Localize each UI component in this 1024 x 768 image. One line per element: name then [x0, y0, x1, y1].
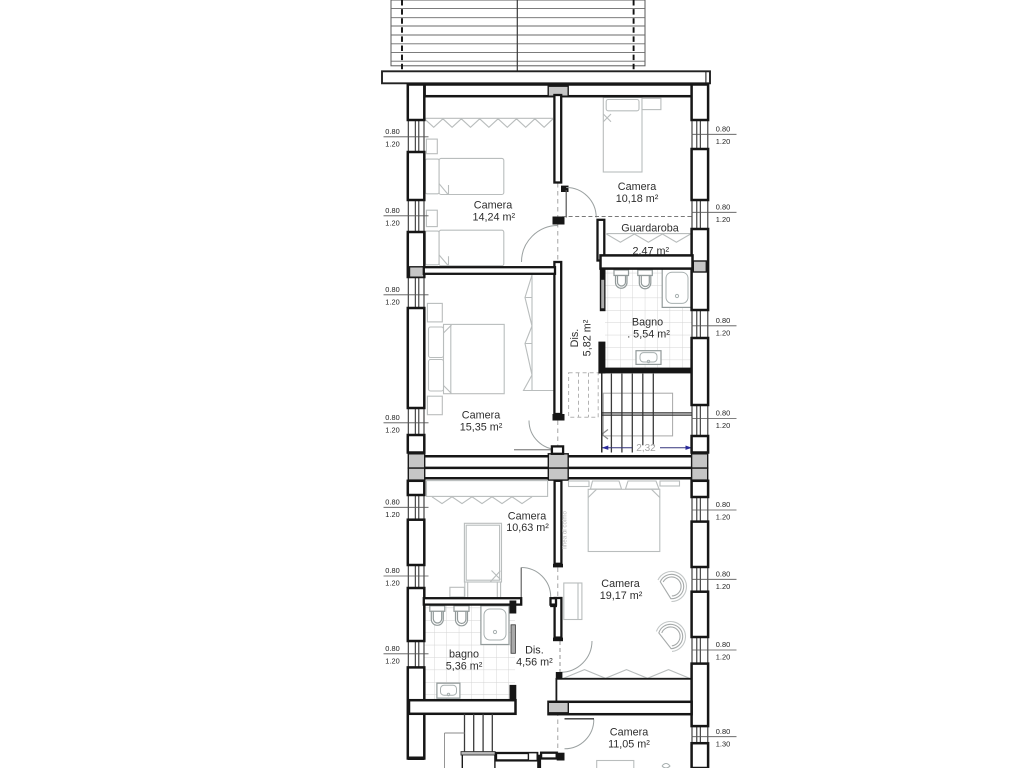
svg-text:0.80: 0.80	[385, 413, 399, 422]
svg-text:0.80: 0.80	[385, 566, 399, 575]
svg-text:15,35 m²: 15,35 m²	[460, 422, 503, 434]
svg-text:2,47 m²: 2,47 m²	[632, 246, 669, 258]
svg-text:0.80: 0.80	[716, 640, 730, 649]
svg-text:2,32: 2,32	[636, 443, 656, 454]
svg-text:0.80: 0.80	[385, 498, 399, 507]
svg-text:14,24 m²: 14,24 m²	[472, 212, 515, 224]
svg-text:0.80: 0.80	[716, 727, 730, 736]
svg-text:19,17 m²: 19,17 m²	[600, 590, 643, 602]
svg-text:0.80: 0.80	[385, 127, 399, 136]
svg-text:1.20: 1.20	[716, 137, 730, 146]
svg-text:1.20: 1.20	[385, 579, 399, 588]
svg-text:1.20: 1.20	[716, 421, 730, 430]
svg-text:0.80: 0.80	[716, 203, 730, 212]
svg-text:bagno: bagno	[449, 649, 479, 661]
svg-text:Camera: Camera	[474, 200, 512, 212]
svg-text:Camera: Camera	[610, 727, 648, 739]
svg-text:1.20: 1.20	[385, 140, 399, 149]
svg-text:1.20: 1.20	[716, 329, 730, 338]
svg-text:Dis.: Dis.	[569, 329, 581, 348]
svg-text:1.20: 1.20	[716, 653, 730, 662]
svg-text:1.20: 1.20	[385, 426, 399, 435]
svg-text:1.20: 1.20	[385, 657, 399, 666]
svg-text:5,82 m²: 5,82 m²	[582, 319, 594, 356]
svg-text:5,36 m²: 5,36 m²	[446, 661, 483, 673]
svg-text:0.80: 0.80	[716, 409, 730, 418]
svg-text:Dis.: Dis.	[525, 645, 544, 657]
svg-text:Bagno: Bagno	[632, 317, 663, 329]
svg-text:0.80: 0.80	[716, 570, 730, 579]
svg-text:Camera: Camera	[508, 511, 546, 523]
svg-text:0.80: 0.80	[716, 316, 730, 325]
svg-text:1.20: 1.20	[716, 215, 730, 224]
svg-text:1.30: 1.30	[716, 739, 730, 748]
svg-text:1.20: 1.20	[716, 513, 730, 522]
svg-text:Guardaroba: Guardaroba	[621, 223, 679, 235]
svg-text:1.20: 1.20	[385, 510, 399, 519]
svg-text:10,18 m²: 10,18 m²	[616, 193, 659, 205]
svg-text:0.80: 0.80	[716, 125, 730, 134]
svg-text:4,56 m²: 4,56 m²	[516, 657, 553, 669]
svg-text:11,05 m²: 11,05 m²	[608, 739, 650, 751]
svg-text:1.20: 1.20	[716, 582, 730, 591]
svg-text:0.80: 0.80	[385, 285, 399, 294]
svg-text:10,63 m²: 10,63 m²	[506, 522, 549, 534]
svg-text:0.80: 0.80	[716, 500, 730, 509]
svg-text:0.80: 0.80	[385, 644, 399, 653]
svg-text:linea di colmo: linea di colmo	[562, 511, 569, 549]
svg-text:Camera: Camera	[618, 181, 656, 193]
svg-text:0.80: 0.80	[385, 206, 399, 215]
svg-text:1.20: 1.20	[385, 219, 399, 228]
svg-text:1.20: 1.20	[385, 298, 399, 307]
svg-text:Camera: Camera	[601, 578, 639, 590]
svg-text:. 5,54 m²: . 5,54 m²	[627, 329, 670, 341]
svg-text:Camera: Camera	[462, 410, 500, 422]
